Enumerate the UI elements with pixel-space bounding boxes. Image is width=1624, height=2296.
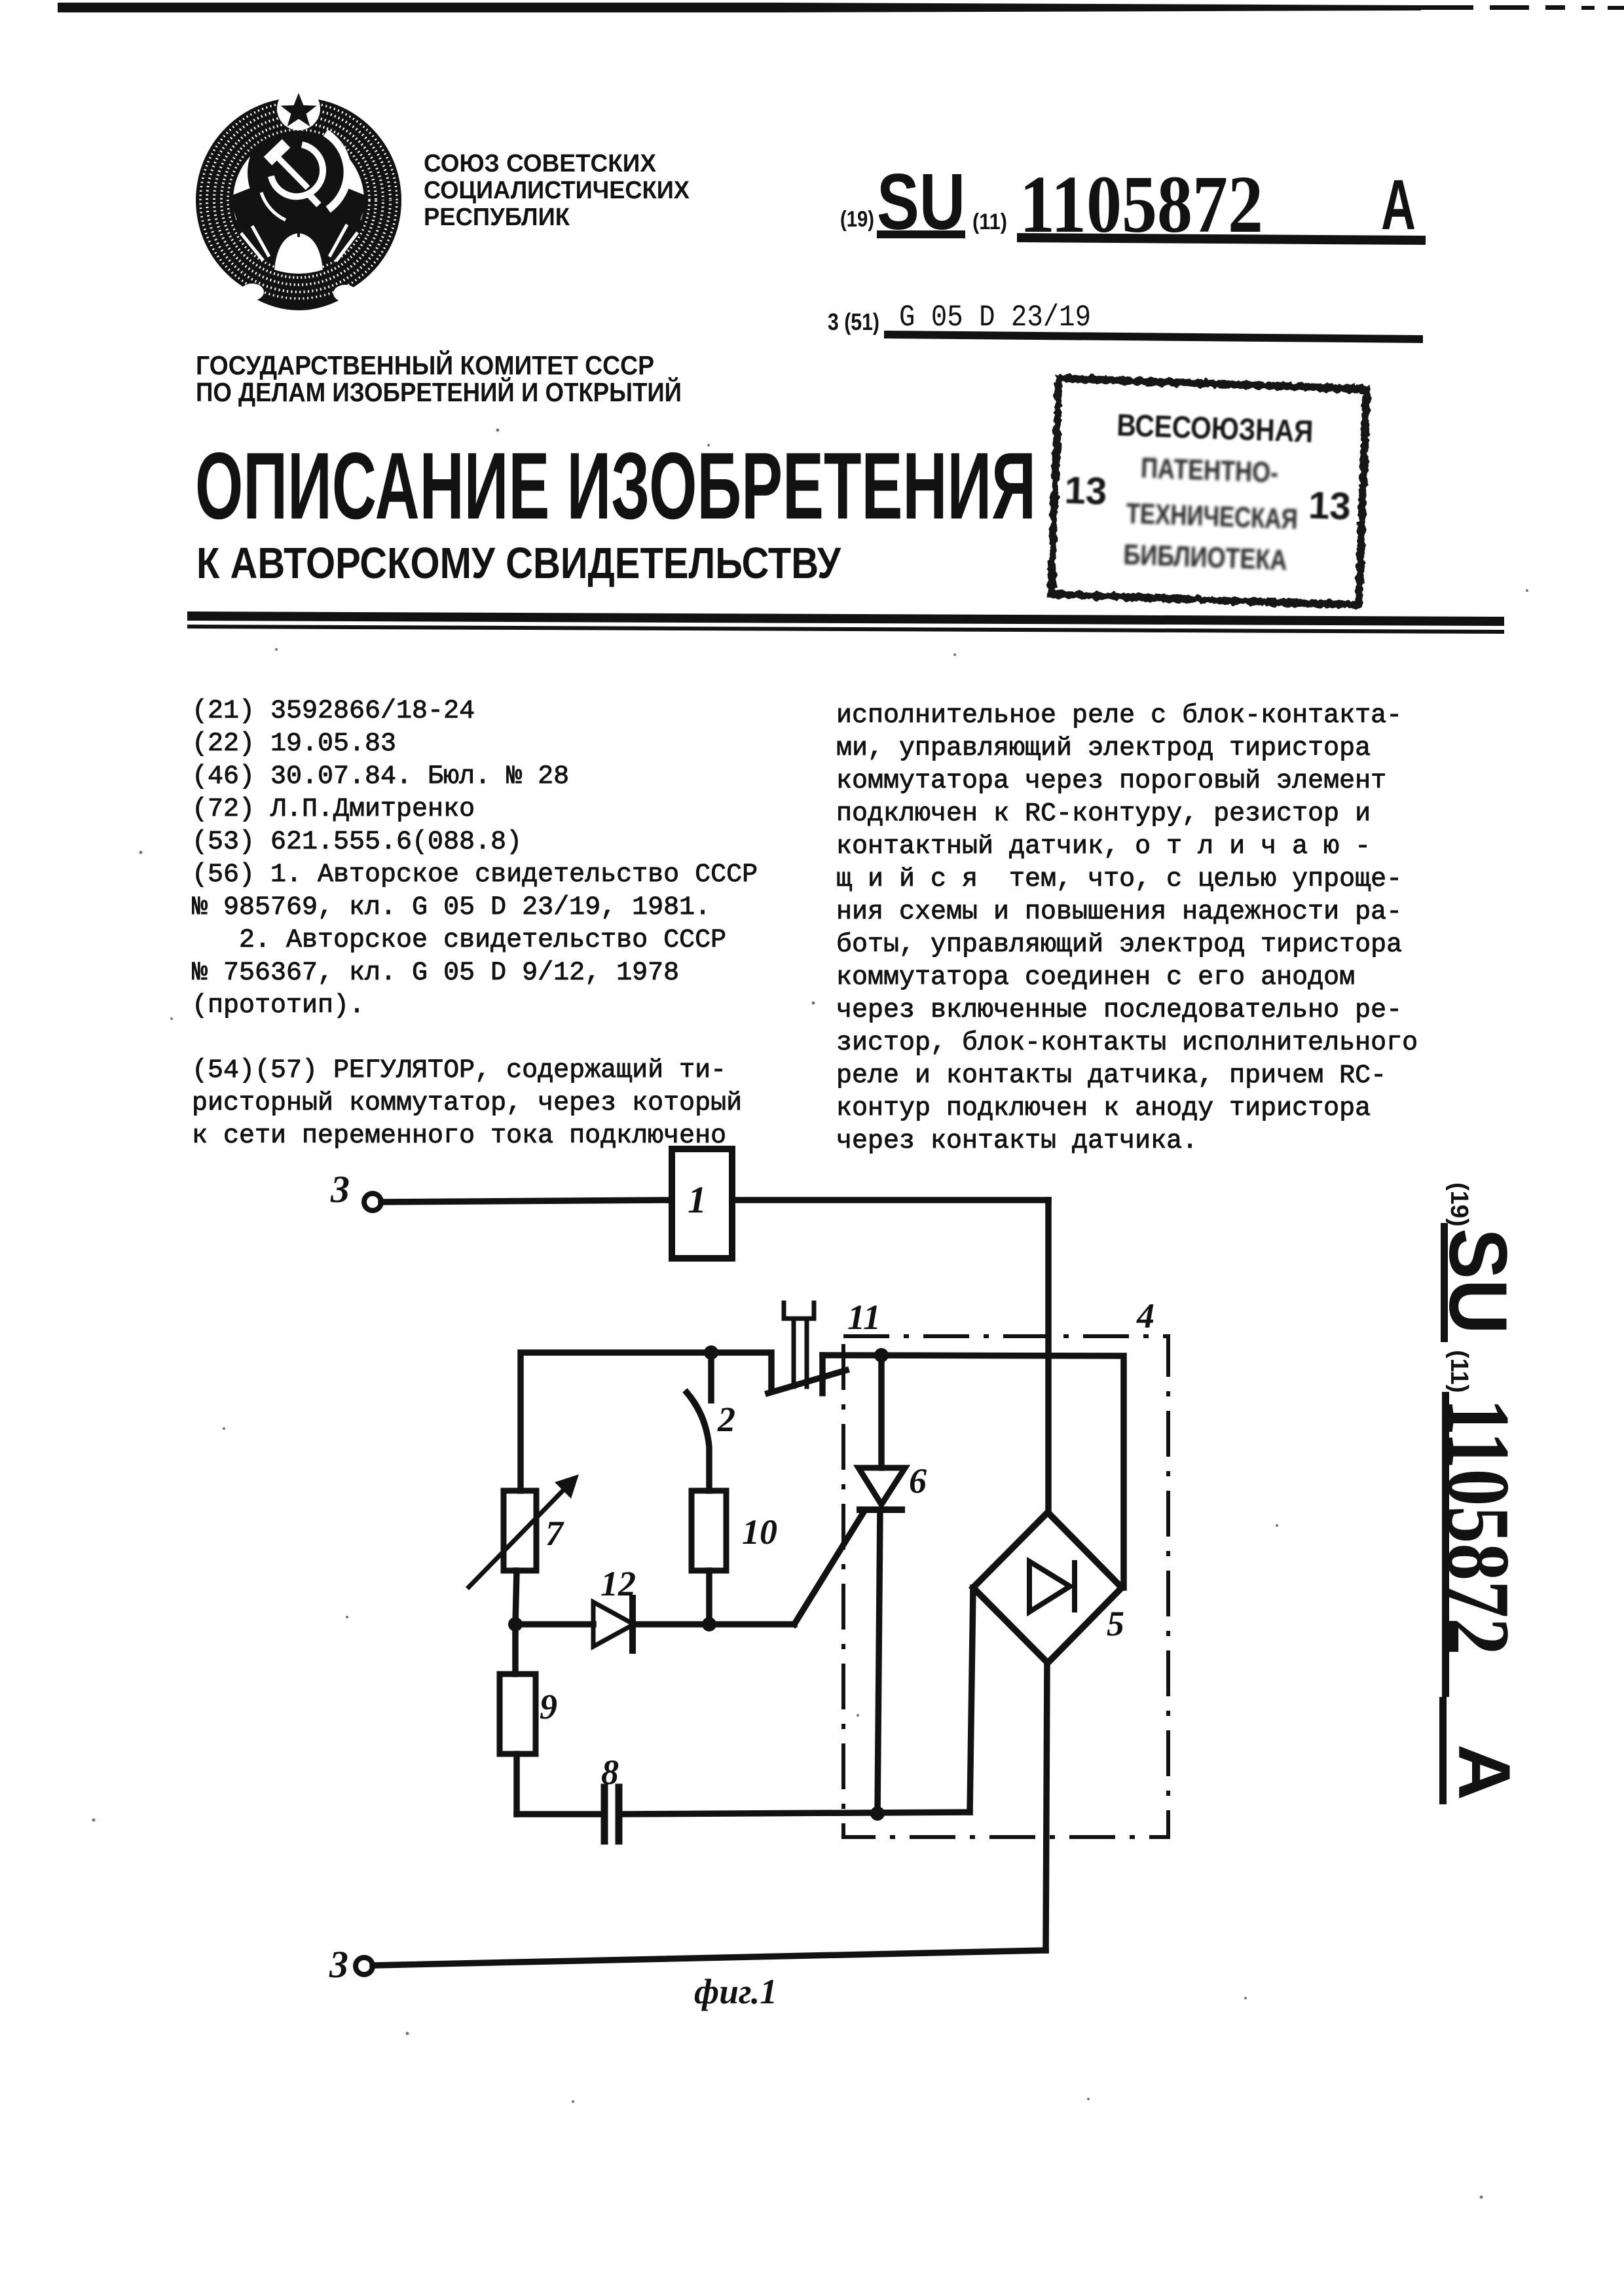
- svg-text:фиг.1: фиг.1: [694, 1972, 777, 2011]
- svg-text:ВСЕСОЮЗНАЯ: ВСЕСОЮЗНАЯ: [1116, 407, 1314, 448]
- svg-text:G 05 D 23/19: G 05 D 23/19: [899, 301, 1091, 335]
- svg-text:13: 13: [1064, 469, 1108, 513]
- svg-text:(72) Л.П.Дмитренко: (72) Л.П.Дмитренко: [192, 795, 475, 824]
- svg-text:(11): (11): [1445, 1350, 1473, 1393]
- svg-text:ОПИСАНИЕ ИЗОБРЕТЕНИЯ: ОПИСАНИЕ ИЗОБРЕТЕНИЯ: [195, 433, 1036, 539]
- svg-text:3: 3: [329, 1943, 348, 1986]
- svg-text:9: 9: [540, 1687, 557, 1726]
- svg-text:контур подключен к аноду тирис: контур подключен к аноду тиристора: [836, 1094, 1371, 1123]
- svg-text:6: 6: [909, 1461, 927, 1501]
- svg-text:подключен к RC-контуру, резист: подключен к RC-контуру, резистор и: [836, 799, 1371, 829]
- svg-text:2: 2: [717, 1400, 735, 1439]
- svg-text:2. Авторское свидетельство ССС: 2. Авторское свидетельство СССР: [192, 926, 726, 955]
- svg-text:№ 985769, кл. G 05 D 23/19, 19: № 985769, кл. G 05 D 23/19, 1981.: [192, 893, 710, 922]
- svg-text:4: 4: [1136, 1296, 1154, 1336]
- svg-text:К АВТОРСКОМУ СВИДЕТЕЛЬСТВУ: К АВТОРСКОМУ СВИДЕТЕЛЬСТВУ: [196, 539, 841, 588]
- svg-text:щ и й с я тем, что, с целью у: щ и й с я тем, что, с целью упроще-: [836, 865, 1402, 894]
- svg-text:(21) 3592866/18-24: (21) 3592866/18-24: [192, 697, 475, 726]
- svg-text:ГОСУДАРСТВЕННЫЙ КОМИТЕТ СССР: ГОСУДАРСТВЕННЫЙ КОМИТЕТ СССР: [196, 350, 654, 380]
- svg-text:A: A: [1443, 1744, 1525, 1800]
- svg-text:3: 3: [330, 1168, 350, 1211]
- svg-text:1: 1: [688, 1178, 707, 1221]
- svg-text:(56) 1. Авторское свидетельств: (56) 1. Авторское свидетельство СССР: [192, 860, 758, 890]
- svg-text:(19): (19): [1445, 1182, 1473, 1227]
- svg-text:12: 12: [600, 1564, 636, 1603]
- svg-text:ристорный коммутатор, через ко: ристорный коммутатор, через который: [192, 1089, 742, 1118]
- svg-text:(53) 621.555.6(088.8): (53) 621.555.6(088.8): [192, 828, 522, 857]
- svg-text:СОЮЗ СОВЕТСКИХ: СОЮЗ СОВЕТСКИХ: [424, 150, 657, 177]
- svg-text:БИБЛИОТЕКА: БИБЛИОТЕКА: [1123, 539, 1288, 577]
- svg-text:5: 5: [1107, 1604, 1124, 1643]
- svg-text:ПО ДЕЛАМ ИЗОБРЕТЕНИЙ И ОТКРЫТИ: ПО ДЕЛАМ ИЗОБРЕТЕНИЙ И ОТКРЫТИЙ: [196, 377, 682, 407]
- svg-text:зистор, блок-контакты исполнит: зистор, блок-контакты исполнительного: [836, 1029, 1418, 1058]
- svg-text:РЕСПУБЛИК: РЕСПУБЛИК: [424, 204, 570, 231]
- svg-text:к сети переменного тока подклю: к сети переменного тока подключено: [192, 1121, 726, 1151]
- svg-text:(прототип).: (прототип).: [192, 991, 365, 1021]
- svg-text:СОЦИАЛИСТИЧЕСКИХ: СОЦИАЛИСТИЧЕСКИХ: [424, 177, 690, 204]
- svg-text:(22) 19.05.83: (22) 19.05.83: [192, 729, 396, 759]
- svg-text:контактный датчик, о т л и ч а: контактный датчик, о т л и ч а ю -: [836, 832, 1371, 862]
- svg-text:(46) 30.07.84. Бюл. № 28: (46) 30.07.84. Бюл. № 28: [192, 762, 569, 792]
- svg-text:(54)(57) РЕГУЛЯТОР, содержащий: (54)(57) РЕГУЛЯТОР, содержащий ти-: [192, 1056, 726, 1085]
- svg-text:8: 8: [601, 1753, 619, 1792]
- svg-text:коммутатора через пороговый эл: коммутатора через пороговый элемент: [836, 767, 1386, 796]
- svg-text:боты, управляющий электрод тир: боты, управляющий электрод тиристора: [836, 930, 1402, 960]
- svg-text:№ 756367, кл. G 05 D 9/12, 197: № 756367, кл. G 05 D 9/12, 1978: [192, 958, 679, 988]
- svg-text:коммутатора соединен с его ано: коммутатора соединен с его анодом: [836, 963, 1355, 993]
- svg-text:(11): (11): [972, 210, 1007, 234]
- svg-text:3 (51): 3 (51): [828, 308, 879, 335]
- svg-text:через включенные последователь: через включенные последовательно ре-: [836, 996, 1402, 1025]
- svg-text:через контакты датчика.: через контакты датчика.: [836, 1127, 1198, 1156]
- svg-text:ния схемы и повышения надежнос: ния схемы и повышения надежности ра-: [836, 898, 1402, 927]
- svg-text:A: A: [1381, 165, 1416, 245]
- svg-text:11: 11: [847, 1298, 881, 1337]
- svg-text:исполнительное реле с блок-кон: исполнительное реле с блок-контакта-: [836, 701, 1402, 731]
- svg-text:10: 10: [742, 1512, 777, 1552]
- svg-text:реле и контакты датчика, приче: реле и контакты датчика, причем RC-: [836, 1061, 1386, 1091]
- svg-text:ми, управляющий электрод тирис: ми, управляющий электрод тиристора: [836, 734, 1371, 763]
- svg-text:ПАТЕНТНО-: ПАТЕНТНО-: [1140, 452, 1279, 488]
- svg-text:(19): (19): [840, 207, 874, 232]
- svg-text:7: 7: [545, 1514, 564, 1553]
- svg-text:ТЕХНИЧЕСКАЯ: ТЕХНИЧЕСКАЯ: [1126, 498, 1299, 536]
- svg-text:13: 13: [1308, 484, 1352, 528]
